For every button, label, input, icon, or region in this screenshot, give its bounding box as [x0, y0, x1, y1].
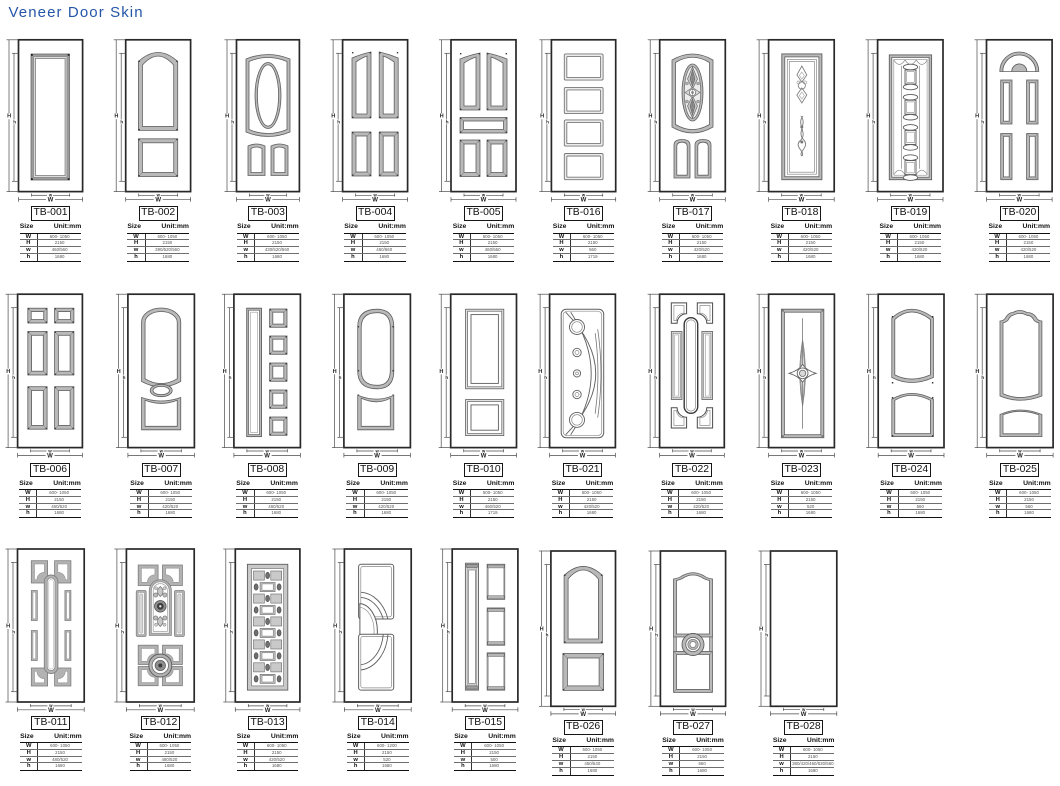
svg-text:W: W [155, 198, 161, 204]
svg-text:W: W [799, 198, 805, 204]
svg-text:H: H [225, 114, 229, 120]
svg-text:H: H [649, 627, 653, 633]
svg-text:W: W [48, 198, 54, 204]
svg-text:W: W [580, 712, 586, 718]
svg-text:W: W [482, 708, 488, 714]
svg-text:h: h [544, 375, 547, 380]
svg-text:W: W [690, 198, 696, 204]
svg-text:h: h [546, 633, 549, 638]
svg-text:H: H [439, 369, 443, 375]
svg-text:H: H [331, 114, 335, 120]
svg-text:h: h [981, 120, 984, 125]
svg-text:H: H [223, 369, 227, 375]
svg-text:H: H [538, 369, 542, 375]
svg-text:h: h [123, 375, 126, 380]
svg-text:W: W [375, 708, 381, 714]
svg-text:H: H [441, 624, 445, 630]
svg-text:W: W [689, 454, 695, 460]
svg-text:h: h [763, 120, 766, 125]
svg-text:h: h [339, 375, 342, 380]
svg-text:h: h [229, 375, 232, 380]
svg-text:H: H [540, 114, 544, 120]
svg-text:h: h [447, 630, 450, 635]
svg-text:W: W [47, 454, 53, 460]
svg-text:W: W [580, 454, 586, 460]
svg-text:H: H [6, 624, 10, 630]
svg-text:h: h [339, 630, 342, 635]
svg-text:W: W [158, 454, 164, 460]
svg-text:W: W [801, 712, 807, 718]
svg-text:h: h [120, 120, 123, 125]
svg-text:H: H [440, 114, 444, 120]
svg-text:H: H [867, 369, 871, 375]
svg-text:W: W [481, 198, 487, 204]
svg-text:h: h [546, 120, 549, 125]
svg-text:h: h [121, 630, 124, 635]
svg-text:h: h [763, 375, 766, 380]
svg-text:W: W [157, 708, 163, 714]
svg-text:H: H [224, 624, 228, 630]
svg-text:H: H [975, 369, 979, 375]
svg-text:h: h [872, 120, 875, 125]
svg-text:W: W [908, 454, 914, 460]
svg-text:H: H [648, 114, 652, 120]
svg-text:H: H [117, 369, 121, 375]
svg-text:H: H [757, 114, 761, 120]
svg-text:H: H [866, 114, 870, 120]
svg-text:W: W [265, 198, 271, 204]
svg-text:H: H [114, 114, 118, 120]
svg-text:W: W [372, 198, 378, 204]
svg-text:h: h [231, 120, 234, 125]
svg-text:h: h [873, 375, 876, 380]
svg-text:H: H [759, 627, 763, 633]
svg-text:W: W [690, 712, 696, 718]
svg-text:H: H [540, 627, 544, 633]
svg-text:h: h [654, 120, 657, 125]
svg-text:W: W [265, 708, 271, 714]
svg-text:h: h [981, 375, 984, 380]
svg-text:H: H [6, 369, 10, 375]
svg-text:H: H [648, 369, 652, 375]
svg-text:H: H [333, 369, 337, 375]
svg-text:h: h [654, 375, 657, 380]
svg-text:h: h [13, 120, 16, 125]
svg-text:h: h [765, 633, 768, 638]
svg-text:h: h [12, 375, 15, 380]
svg-text:h: h [655, 633, 658, 638]
svg-text:h: h [445, 375, 448, 380]
svg-text:W: W [581, 198, 587, 204]
svg-text:h: h [230, 630, 233, 635]
svg-text:H: H [333, 624, 337, 630]
svg-text:W: W [799, 454, 805, 460]
svg-text:h: h [446, 120, 449, 125]
svg-text:W: W [374, 454, 380, 460]
svg-text:W: W [264, 454, 270, 460]
svg-text:W: W [1017, 454, 1023, 460]
svg-text:H: H [975, 114, 979, 120]
svg-text:h: h [12, 630, 15, 635]
svg-text:W: W [48, 708, 54, 714]
svg-text:H: H [7, 114, 11, 120]
svg-text:h: h [337, 120, 340, 125]
svg-text:W: W [1016, 198, 1022, 204]
svg-text:W: W [907, 198, 913, 204]
svg-text:H: H [115, 624, 119, 630]
svg-text:W: W [481, 454, 487, 460]
svg-text:H: H [757, 369, 761, 375]
